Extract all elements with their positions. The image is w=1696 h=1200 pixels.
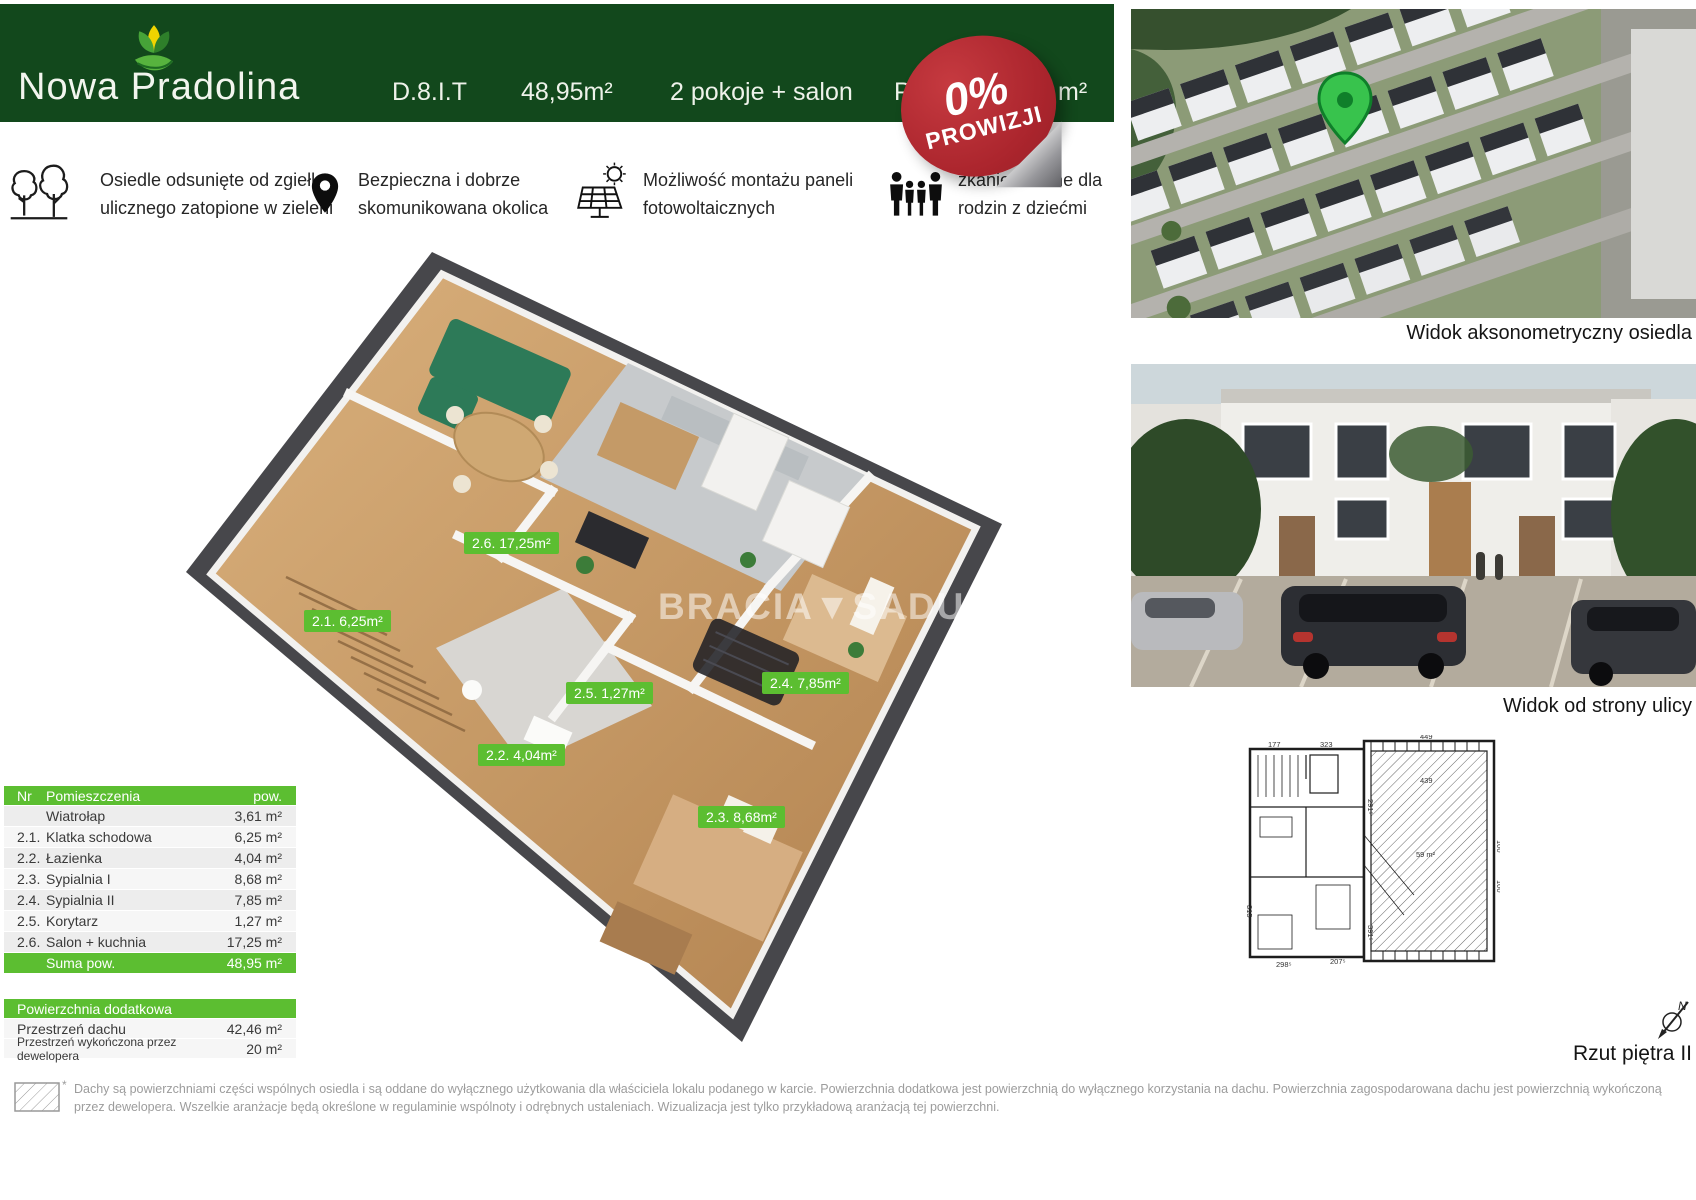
svg-text:59 m²: 59 m² <box>1416 850 1436 859</box>
svg-text:449: 449 <box>1420 735 1433 741</box>
table-row: Przestrzeń wykończona przez dewelopera 2… <box>4 1039 296 1058</box>
caption-aerial: Widok aksonometryczny osiedla <box>1046 322 1692 345</box>
caption-street: Widok od strony ulicy <box>1046 695 1692 718</box>
unit-id: D.8.I.T <box>392 78 467 107</box>
table-row: 2.5.Korytarz1,27 m² <box>4 911 296 931</box>
table-row: 2.3.Sypialnia I8,68 m² <box>4 869 296 889</box>
table-row: 2.2.Łazienka4,04 m² <box>4 848 296 868</box>
feature-text: Możliwość montażu panelifotowoltaicznych <box>643 166 853 222</box>
svg-text:323: 323 <box>1320 740 1333 749</box>
car-silver <box>1131 592 1243 650</box>
svg-text:315: 315 <box>1245 905 1254 918</box>
unit-area: 48,95m² <box>521 78 613 107</box>
street-view-photo <box>1131 364 1696 687</box>
aerial-estate-photo <box>1131 9 1696 318</box>
feature-text: Bezpieczna i dobrzeskomunikowana okolica <box>358 166 548 222</box>
room-label-sypialnia1: 2.3. 8,68m² <box>698 806 785 828</box>
caption-plan: Rzut piętra II <box>1046 1042 1692 1066</box>
table-row: Wiatrołap3,61 m² <box>4 806 296 826</box>
additional-area-table: Powierzchnia dodatkowa Przestrzeń dachu … <box>4 999 296 1058</box>
additional-table-header: Powierzchnia dodatkowa <box>4 999 296 1018</box>
north-compass-icon: N <box>1650 996 1696 1042</box>
room-label-salon: 2.6. 17,25m² <box>464 532 559 554</box>
unit-rooms: 2 pokoje + salon <box>670 78 853 107</box>
room-label-korytarz: 2.5. 1,27m² <box>566 682 653 704</box>
room-label-lazienka: 2.2. 4,04m² <box>478 744 565 766</box>
svg-text:100: 100 <box>1495 880 1500 893</box>
map-pin-icon <box>310 162 340 224</box>
car-dark-suv <box>1281 586 1466 679</box>
roof-hatch-legend-icon <box>14 1082 60 1112</box>
svg-text:291⁵: 291⁵ <box>1366 799 1375 815</box>
svg-text:391⁵: 391⁵ <box>1366 925 1375 941</box>
room-label-klatka: 2.1. 6,25m² <box>304 610 391 632</box>
svg-text:439: 439 <box>1420 776 1433 785</box>
brand-name: Nowa Pradolina <box>18 66 300 109</box>
rooms-table-total: Suma pow. 48,95 m² <box>4 953 296 973</box>
solar-panel-icon <box>576 160 628 224</box>
svg-text:100: 100 <box>1495 840 1500 853</box>
technical-floorplan-drawing: 177 323 449 439 291⁵ 59 m² 100 100 315 2… <box>1244 735 1500 968</box>
room-label-sypialnia2: 2.4. 7,85m² <box>762 672 849 694</box>
svg-text:298⁵: 298⁵ <box>1276 960 1292 968</box>
table-row: 2.6.Salon + kuchnia17,25 m² <box>4 932 296 952</box>
svg-text:177: 177 <box>1268 740 1281 749</box>
svg-text:207⁵: 207⁵ <box>1330 957 1346 966</box>
brochure-page: Nowa Pradolina D.8.I.T 48,95m² 2 pokoje … <box>0 0 1696 1200</box>
rooms-table: Nr Pomieszczenia pow. Wiatrołap3,61 m² 2… <box>4 786 296 973</box>
feature-text: Osiedle odsunięte od zgiełkuulicznego za… <box>100 166 333 222</box>
table-row: 2.1.Klatka schodowa6,25 m² <box>4 827 296 847</box>
rooms-table-header: Nr Pomieszczenia pow. <box>4 786 296 805</box>
agency-watermark: BRACIA▼SADUR <box>658 586 994 628</box>
svg-text:N: N <box>1678 999 1687 1013</box>
disclaimer-text: Dachy są powierzchniami części wspólnych… <box>74 1081 1692 1116</box>
table-row: 2.4.Sypialnia II7,85 m² <box>4 890 296 910</box>
footnote-asterisk: * <box>62 1078 67 1092</box>
car-dark-right <box>1571 600 1696 686</box>
trees-icon <box>8 162 70 226</box>
